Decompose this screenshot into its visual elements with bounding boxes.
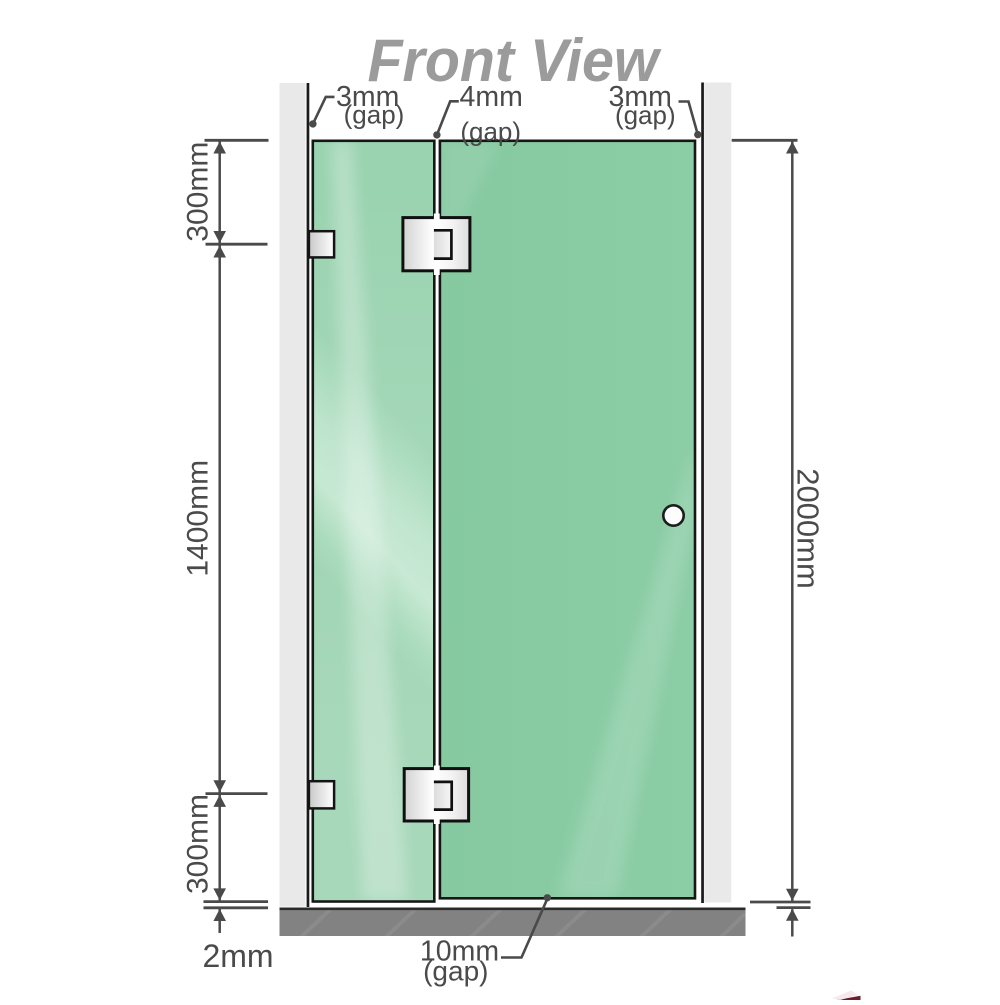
svg-text:(gap): (gap)	[344, 100, 405, 130]
svg-text:(gap): (gap)	[615, 100, 676, 130]
svg-text:2000mm: 2000mm	[791, 468, 826, 589]
svg-text:4mm: 4mm	[460, 81, 523, 113]
svg-text:2mm: 2mm	[202, 938, 273, 974]
svg-text:(gap): (gap)	[460, 117, 521, 147]
svg-text:300mm: 300mm	[182, 794, 215, 894]
svg-text:(gap): (gap)	[423, 956, 488, 987]
svg-text:1400mm: 1400mm	[182, 460, 215, 577]
svg-text:300mm: 300mm	[182, 142, 215, 242]
